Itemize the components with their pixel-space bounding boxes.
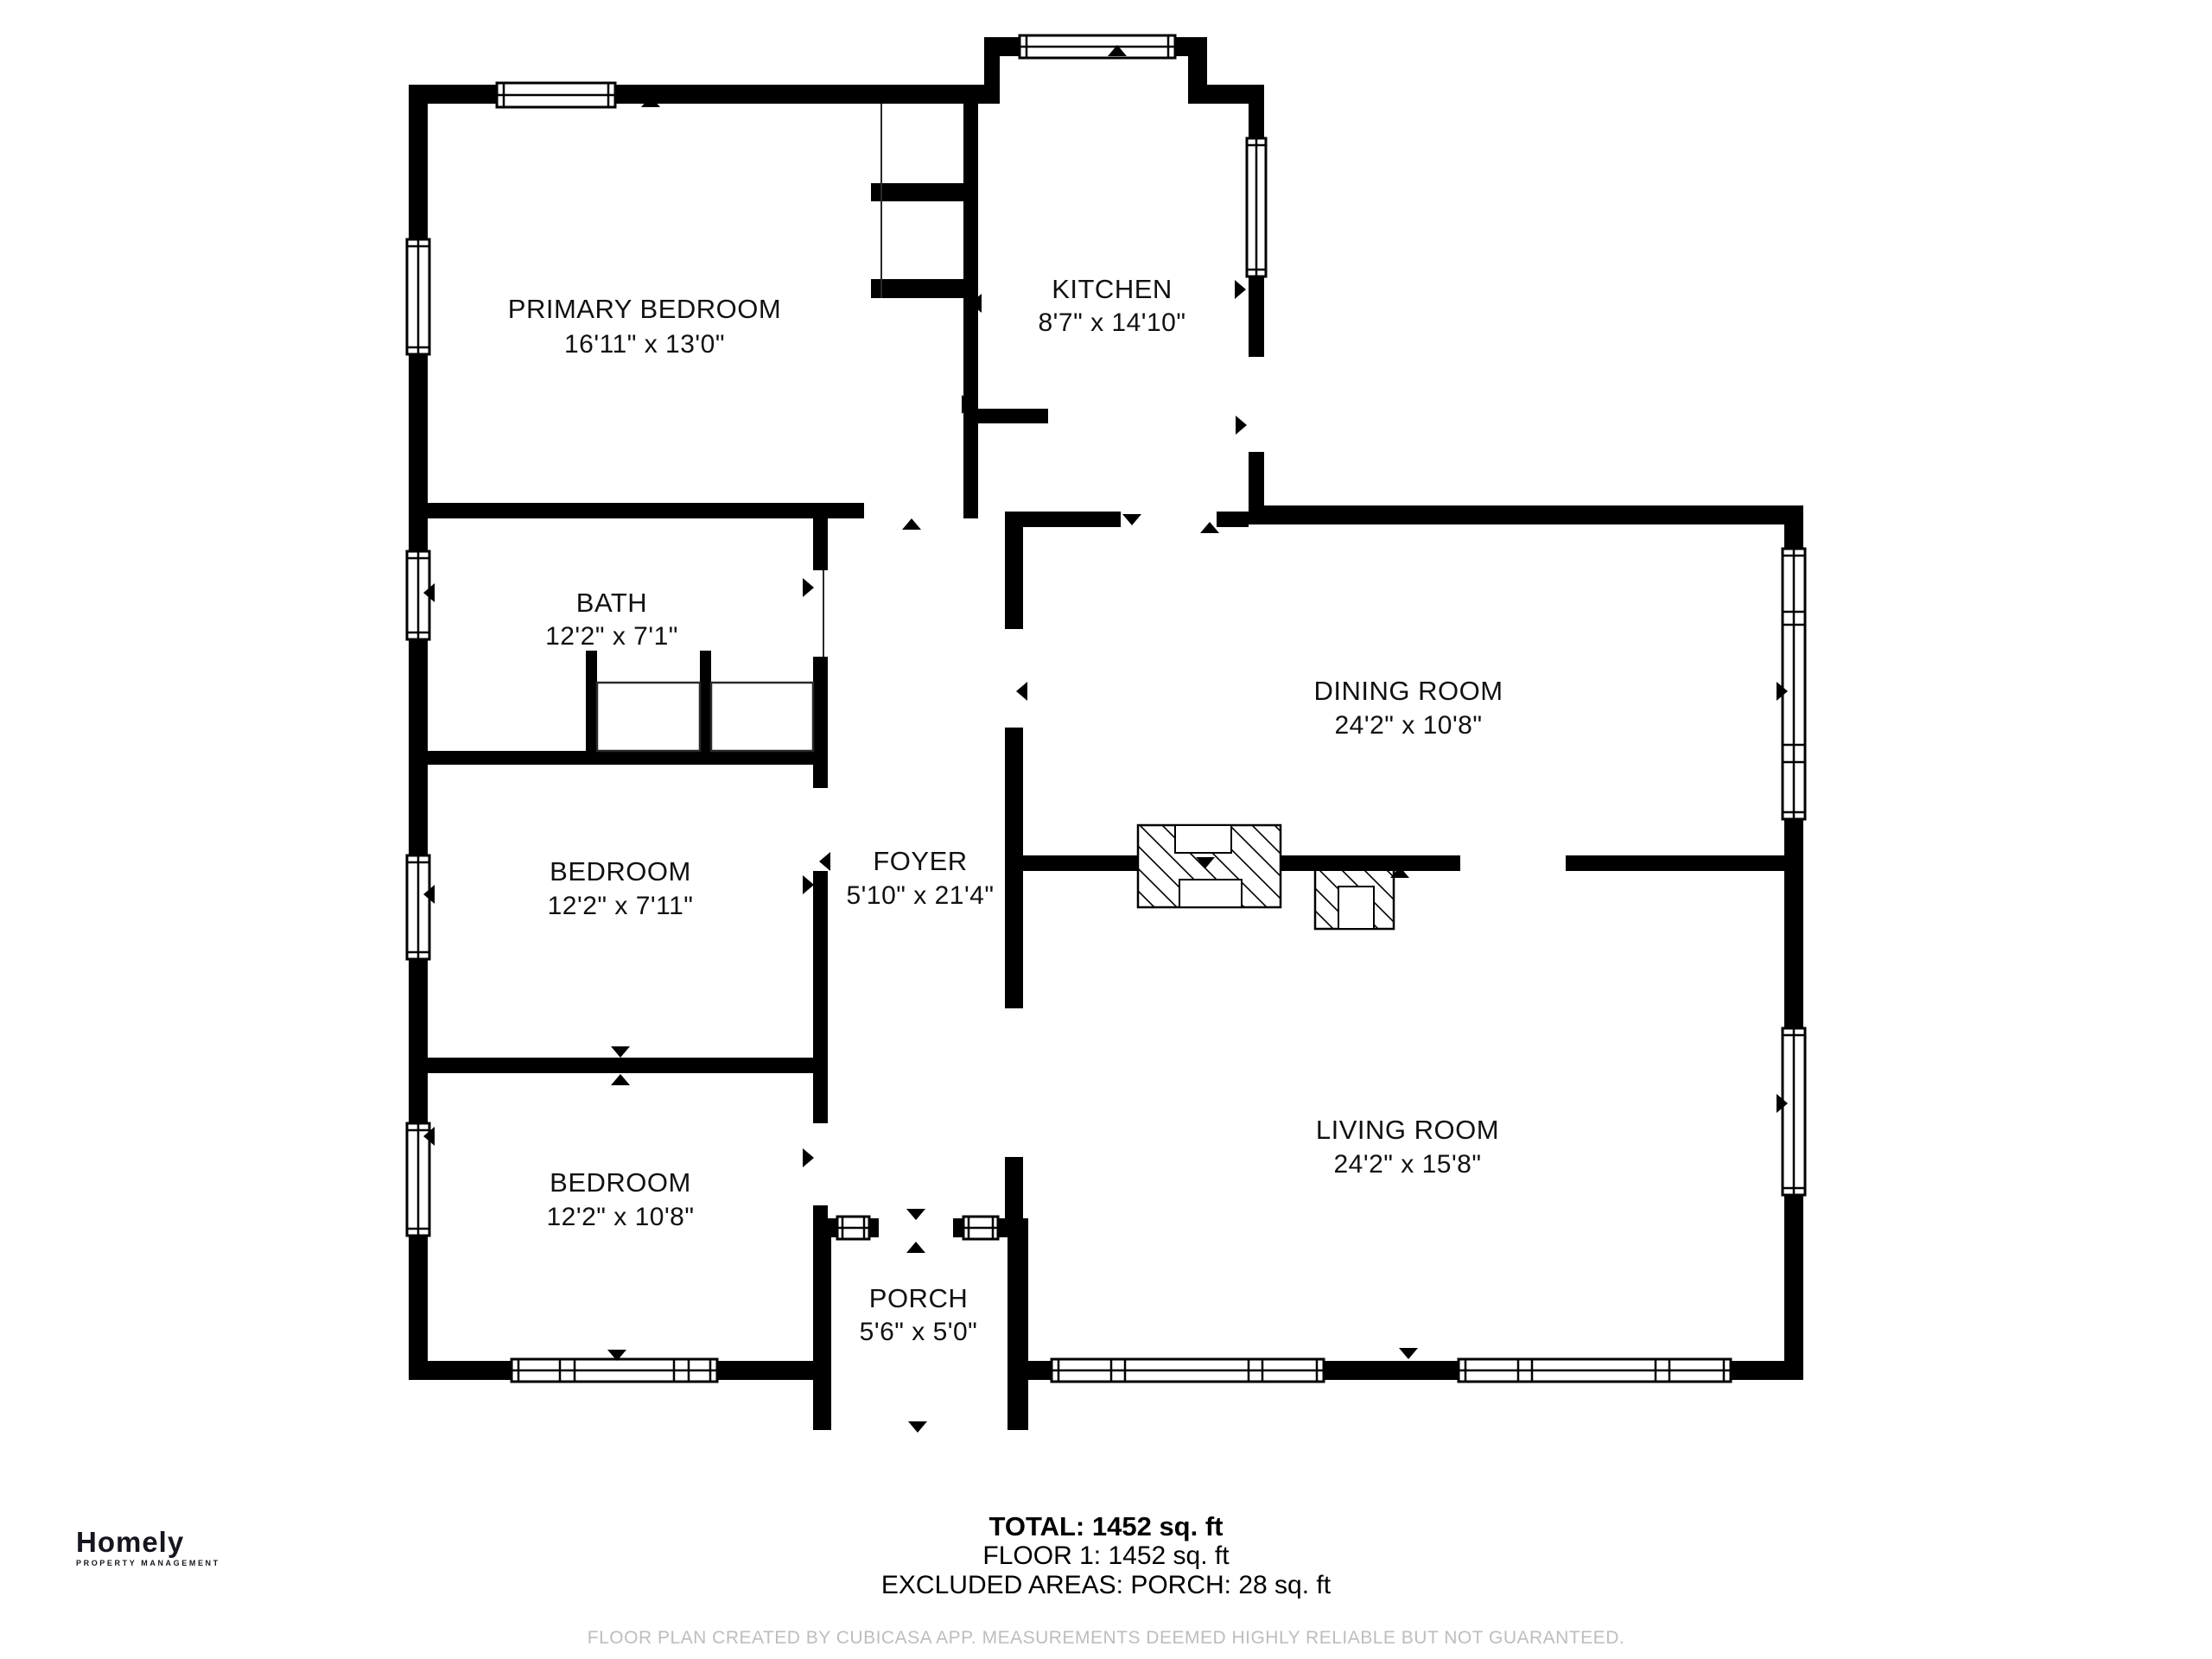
marker-down-icon (1122, 514, 1141, 525)
room-dimensions: 5'10" x 21'4" (846, 881, 994, 910)
room-label-kitchen: KITCHEN 8'7" x 14'10" (1038, 274, 1185, 337)
room-label-foyer: FOYER 5'10" x 21'4" (846, 846, 994, 910)
room-name: DINING ROOM (1313, 676, 1503, 706)
marker-left-icon (1016, 682, 1027, 701)
room-dimensions: 12'2" x 7'11" (548, 892, 694, 920)
room-name: BATH (576, 588, 647, 618)
fixtures (597, 104, 881, 751)
chimney-notch (1338, 887, 1374, 929)
room-name: PRIMARY BEDROOM (508, 294, 781, 324)
room-name: BEDROOM (550, 856, 691, 887)
room-dimensions: 12'2" x 10'8" (546, 1203, 694, 1231)
room-label-bedroom-lower: BEDROOM 12'2" x 10'8" (546, 1167, 694, 1231)
window (407, 239, 429, 354)
room-dimensions: 24'2" x 15'8" (1333, 1150, 1481, 1179)
room-label-bedroom-middle: BEDROOM 12'2" x 7'11" (548, 856, 694, 920)
total-area-text: TOTAL: 1452 sq. ft (0, 1512, 2212, 1541)
window (512, 1359, 717, 1382)
logo-wordmark: Homely (76, 1528, 220, 1557)
marker-right-icon (803, 875, 814, 894)
window (407, 551, 429, 639)
marker-right-icon (803, 1148, 814, 1167)
floor1-area-text: FLOOR 1: 1452 sq. ft (0, 1541, 2212, 1571)
room-label-living-room: LIVING ROOM 24'2" x 15'8" (1316, 1115, 1499, 1179)
room-dimensions: 12'2" x 7'1" (545, 622, 678, 651)
room-name: LIVING ROOM (1316, 1115, 1499, 1145)
window (963, 1217, 998, 1239)
floor-plan-page: PRIMARY BEDROOM 16'11" x 13'0" KITCHEN 8… (0, 0, 2212, 1659)
disclaimer-text: FLOOR PLAN CREATED BY CUBICASA APP. MEAS… (0, 1628, 2212, 1649)
room-label-bath: BATH 12'2" x 7'1" (545, 588, 678, 651)
window (1247, 138, 1266, 276)
window (1783, 1028, 1805, 1195)
room-name: PORCH (869, 1283, 968, 1313)
room-dimensions: 24'2" x 10'8" (1334, 711, 1482, 740)
marker-down-icon (1399, 1348, 1418, 1359)
marker-right-icon (1235, 280, 1246, 299)
marker-down-icon (908, 1421, 927, 1433)
room-dimensions: 5'6" x 5'0" (860, 1318, 978, 1346)
marker-left-icon (819, 852, 830, 871)
room-label-dining-room: DINING ROOM 24'2" x 10'8" (1313, 676, 1503, 740)
window (407, 855, 429, 959)
window (1020, 35, 1175, 58)
window (1783, 549, 1805, 819)
room-dimensions: 16'11" x 13'0" (564, 330, 725, 359)
excluded-area-text: EXCLUDED AREAS: PORCH: 28 sq. ft (0, 1571, 2212, 1600)
firebox-dining (1175, 825, 1231, 853)
window (1459, 1359, 1731, 1382)
marker-up-icon (902, 518, 921, 530)
room-label-porch: PORCH 5'6" x 5'0" (860, 1283, 978, 1346)
room-name: FOYER (873, 846, 967, 876)
window (497, 83, 615, 107)
room-dimensions: 8'7" x 14'10" (1038, 308, 1185, 337)
firebox-living (1179, 880, 1242, 907)
room-label-primary-bedroom: PRIMARY BEDROOM 16'11" x 13'0" (508, 294, 781, 359)
room-name: KITCHEN (1052, 274, 1173, 304)
marker-right-icon (1236, 416, 1247, 435)
bath-vanity (711, 683, 813, 751)
logo-tagline: PROPERTY MANAGEMENT (76, 1559, 220, 1567)
marker-right-icon (803, 578, 814, 597)
marker-down-icon (611, 1046, 630, 1058)
bathtub (597, 683, 700, 751)
marker-down-icon (906, 1209, 925, 1220)
room-name: BEDROOM (550, 1167, 691, 1198)
marker-up-icon (1200, 522, 1219, 533)
marker-up-icon (611, 1074, 630, 1085)
window (407, 1123, 429, 1236)
area-summary: TOTAL: 1452 sq. ft FLOOR 1: 1452 sq. ft … (0, 1512, 2212, 1600)
window (1052, 1359, 1324, 1382)
window (837, 1217, 869, 1239)
floor-plan-canvas: PRIMARY BEDROOM 16'11" x 13'0" KITCHEN 8… (0, 0, 2212, 1659)
fireplace (1138, 825, 1394, 929)
marker-up-icon (906, 1242, 925, 1253)
homely-logo: Homely PROPERTY MANAGEMENT (76, 1528, 220, 1567)
